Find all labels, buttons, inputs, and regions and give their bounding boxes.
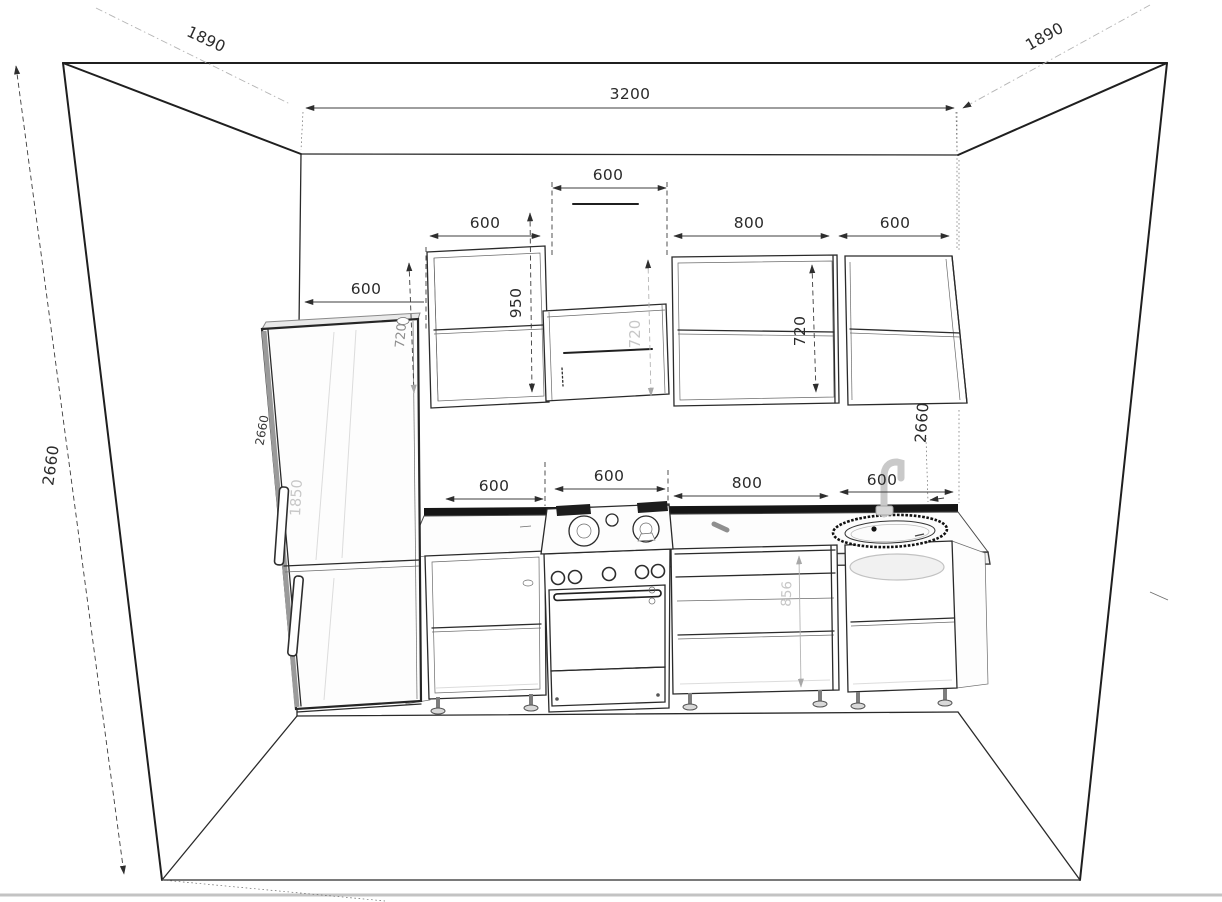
wall-cabinet-left bbox=[427, 246, 549, 408]
dim-label-wall-cab-800: 800 bbox=[734, 214, 765, 232]
fridge-niche-label: 2660 bbox=[253, 414, 272, 447]
foot-base bbox=[524, 705, 538, 711]
dim-label-wall-cab-right: 600 bbox=[880, 214, 911, 232]
back-left-corner-upper bbox=[299, 154, 301, 327]
stove-knob bbox=[603, 568, 616, 581]
wall-cabinet-800 bbox=[672, 255, 839, 406]
stove-knob bbox=[636, 566, 649, 579]
room-dimensions: 2660 1890 1890 3200 2660 bbox=[16, 5, 1150, 874]
burner-front-left bbox=[569, 516, 599, 546]
foot-base bbox=[813, 701, 827, 707]
burner-grate-back-right bbox=[637, 501, 668, 513]
floor-guide-dotted bbox=[162, 880, 385, 901]
foot-base bbox=[938, 700, 952, 706]
burner-center-small bbox=[606, 514, 618, 526]
left-wall-front-edge bbox=[63, 63, 162, 880]
dim-arrow-room-height-right bbox=[930, 498, 944, 500]
back-wall-top-edge bbox=[301, 154, 958, 155]
dim-line-room-height-left bbox=[16, 66, 124, 874]
dim-ext-room-width-left bbox=[301, 112, 303, 150]
stove bbox=[541, 501, 673, 712]
dim-label-base-cab-800: 800 bbox=[732, 474, 763, 492]
base-cabinet-800 bbox=[671, 545, 839, 710]
dim-ext-room-width-right bbox=[956, 112, 957, 151]
dim-label-wall-cab-left-height: 950 bbox=[507, 288, 525, 319]
fridge-height-label: 1850 bbox=[288, 479, 306, 517]
dim-label-wall-cab-right-height: 720 bbox=[791, 316, 809, 347]
stove-knob bbox=[652, 565, 665, 578]
burner-grate-back-left bbox=[556, 504, 591, 516]
burner-cap-trapezoid bbox=[638, 533, 655, 541]
base-cabinet-1-hinge bbox=[523, 580, 533, 586]
wall-cabinet-right-600 bbox=[845, 256, 967, 405]
foot-base bbox=[431, 708, 445, 714]
leg-foot bbox=[431, 697, 445, 714]
sink-base-cabinet bbox=[845, 541, 988, 709]
dim-label-depth-right: 1890 bbox=[1022, 19, 1066, 54]
base-cabinet-1 bbox=[401, 551, 546, 714]
dim-label-base-cab-1: 600 bbox=[479, 477, 510, 495]
foot-base bbox=[683, 704, 697, 710]
dim-label-fridge-gap: 720 bbox=[393, 323, 410, 349]
dim-label-room-height-right: 2660 bbox=[912, 402, 933, 444]
stove-knob bbox=[552, 572, 565, 585]
right-wall-front-edge bbox=[1080, 63, 1167, 880]
foot-base bbox=[851, 703, 865, 709]
dim-label-wall-cab-left: 600 bbox=[470, 214, 501, 232]
back-wall-floor-edge bbox=[297, 712, 958, 716]
hood-cabinet-body bbox=[543, 304, 669, 401]
floor-right-diagonal bbox=[958, 712, 1080, 880]
kitchen-drawing-canvas: 2660 1890 1890 3200 2660 bbox=[0, 0, 1222, 902]
ceiling-left-diagonal bbox=[63, 63, 301, 154]
faucet-base bbox=[876, 506, 893, 515]
sink-bowl-underside bbox=[850, 554, 944, 580]
leg-foot bbox=[524, 694, 538, 711]
kitchen-elevation-svg: 2660 1890 1890 3200 2660 bbox=[0, 0, 1222, 902]
counter-tick-right bbox=[1150, 592, 1168, 600]
leg-foot bbox=[813, 690, 827, 707]
drawer-screw bbox=[656, 693, 660, 697]
dim-label-base-height: 856 bbox=[779, 581, 796, 607]
dim-label-room-height-left: 2660 bbox=[39, 444, 62, 487]
sink-drain bbox=[871, 526, 876, 531]
dim-label-left-offset: 600 bbox=[351, 280, 382, 298]
fridge: 1850 2660 bbox=[253, 313, 421, 712]
leg-foot bbox=[683, 693, 697, 710]
dim-label-hood-height: 720 bbox=[626, 320, 644, 349]
base-cabinet-800-body bbox=[671, 545, 839, 694]
drawer-screw bbox=[555, 697, 559, 701]
dim-label-stove: 600 bbox=[594, 467, 625, 485]
dim-label-room-width: 3200 bbox=[610, 85, 651, 103]
leg-foot bbox=[851, 692, 865, 709]
floor-left-diagonal bbox=[162, 716, 297, 880]
ceiling-right-diagonal bbox=[958, 63, 1167, 155]
dim-label-sink-cab: 600 bbox=[867, 471, 898, 489]
dim-label-hood-width: 600 bbox=[593, 166, 624, 184]
leg-foot bbox=[938, 689, 952, 706]
dim-label-depth-left: 1890 bbox=[184, 23, 228, 56]
stove-knob bbox=[569, 571, 582, 584]
sink-cabinet-side-panel bbox=[952, 541, 988, 688]
